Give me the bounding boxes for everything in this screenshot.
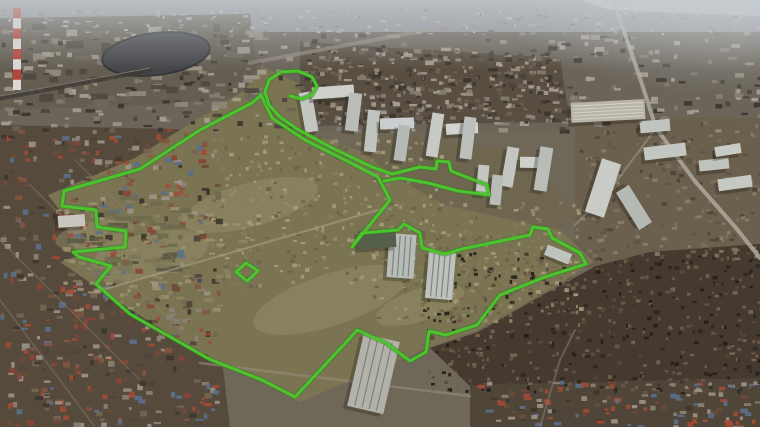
aerial-photo-stage	[0, 0, 760, 427]
aerial-photo	[0, 0, 760, 427]
haze-top-right	[380, 0, 760, 160]
unfinished-tower	[421, 251, 456, 304]
school-roof	[54, 214, 86, 232]
